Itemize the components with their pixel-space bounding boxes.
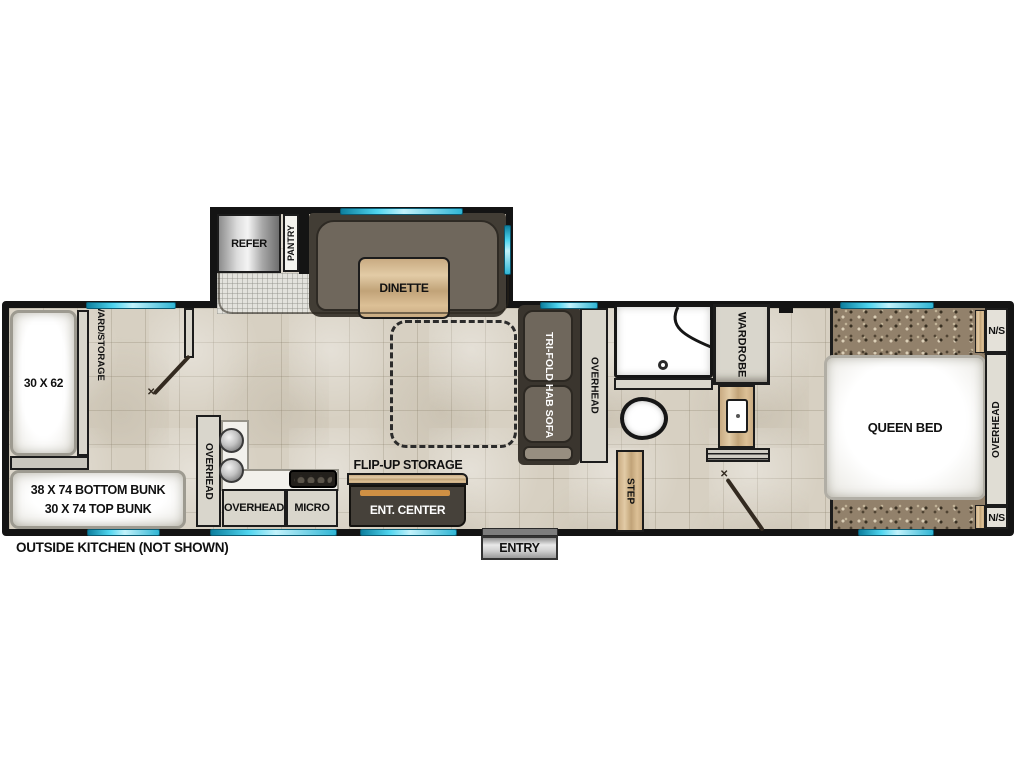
outside-kitchen-label: OUTSIDE KITCHEN (NOT SHOWN) xyxy=(16,540,228,555)
kitchen-sink-1 xyxy=(219,428,244,453)
wardrobe-label: WARDROBE xyxy=(736,312,748,377)
window-bath-top xyxy=(540,302,598,309)
bunk-line1: 38 X 74 BOTTOM BUNK xyxy=(31,481,165,499)
kitchen-overhead-cabinet: OVERHEAD xyxy=(222,489,286,527)
entry-door-threshold xyxy=(482,528,558,536)
window-slideout-side xyxy=(504,225,511,275)
sofa-overhead-cabinet: OVERHEAD xyxy=(580,308,608,463)
window-bedroom-bottom xyxy=(858,529,934,536)
pantry-divider-wall xyxy=(299,213,309,274)
entry-step-outside: ENTRY xyxy=(481,536,558,560)
bedroom-overhead-cabinet: OVERHEAD xyxy=(985,353,1008,506)
bedroom-overhead-label: OVERHEAD xyxy=(991,401,1002,458)
wardrobe-cabinet: WARDROBE xyxy=(713,304,770,385)
ent-center-label: ENT. CENTER xyxy=(370,503,445,517)
shower-drain-icon xyxy=(658,360,668,370)
window-slideout-top xyxy=(340,208,463,215)
window-entcenter-bottom xyxy=(360,529,457,536)
bedroom-door-hinge-icon: ✕ xyxy=(720,470,728,480)
kitchen-overhead-tall-label: OVERHEAD xyxy=(203,443,214,500)
dinette-table: DINETTE xyxy=(358,257,450,319)
flip-up-storage-text: FLIP-UP STORAGE xyxy=(354,458,463,472)
rv-floorplan: REFER PANTRY DINETTE 30 X 62 WARD/ STORA… xyxy=(0,0,1024,768)
shower-threshold xyxy=(614,378,713,390)
vanity-sink xyxy=(726,399,748,433)
queen-bed: QUEEN BED xyxy=(824,355,986,500)
nightstand-bottom: N/S xyxy=(985,506,1008,529)
kitchen-sink-2 xyxy=(219,458,244,483)
nightstand-trim-bottom xyxy=(975,505,985,529)
micro-label: MICRO xyxy=(294,502,329,514)
ent-center-cabinet: ENT. CENTER xyxy=(349,485,466,527)
bath-vanity xyxy=(718,385,755,448)
bunk-divider xyxy=(10,456,89,470)
range-burners xyxy=(294,475,332,483)
kitchen-overhead-label: OVERHEAD xyxy=(224,502,284,514)
sofa-label: TRI-FOLD HAB SOFA xyxy=(543,332,555,438)
window-kitchen-bottom xyxy=(210,529,337,536)
bunk-line2: 30 X 74 TOP BUNK xyxy=(45,500,152,518)
refrigerator: REFER xyxy=(217,214,281,273)
queen-bed-label: QUEEN BED xyxy=(868,420,943,435)
flip-up-storage-label: FLIP-UP STORAGE xyxy=(338,458,478,472)
entry-label: ENTRY xyxy=(499,541,539,555)
refer-label: REFER xyxy=(231,238,267,250)
closet-partition-wall xyxy=(184,308,194,358)
ward-storage-label: WARD/ STORAGE xyxy=(85,311,115,373)
ent-center-accent-bar xyxy=(360,490,450,496)
sofa-label-wrap: TRI-FOLD HAB SOFA xyxy=(518,305,580,465)
ns-top-label: N/S xyxy=(988,325,1005,337)
bedroom-wall-stub xyxy=(779,301,793,313)
front-bed-label: 30 X 62 xyxy=(24,376,63,390)
dinette-label: DINETTE xyxy=(379,281,428,295)
microwave-cabinet: MICRO xyxy=(286,489,338,527)
window-bunk-bottom xyxy=(87,529,160,536)
outside-kitchen-note: OUTSIDE KITCHEN (NOT SHOWN) xyxy=(16,540,296,555)
pantry: PANTRY xyxy=(283,214,299,272)
ward-storage-line2: STORAGE xyxy=(95,334,105,381)
range-cooktop xyxy=(289,470,337,488)
nightstand-trim-top xyxy=(975,310,985,353)
slideout-travel-outline xyxy=(390,320,517,448)
bunk-beds: 38 X 74 BOTTOM BUNK 30 X 74 TOP BUNK xyxy=(10,470,186,529)
bath-dresser xyxy=(706,448,770,462)
kitchen-overhead-cabinet-tall: OVERHEAD xyxy=(196,415,221,527)
nightstand-top: N/S xyxy=(985,308,1008,353)
vanity-faucet-icon xyxy=(736,414,740,418)
front-bed-30x62: 30 X 62 xyxy=(10,310,77,456)
closet-door-hinge-icon: ✕ xyxy=(147,388,155,398)
window-front-top xyxy=(86,302,176,309)
tri-fold-sofa: TRI-FOLD HAB SOFA xyxy=(518,305,580,465)
ns-bottom-label: N/S xyxy=(988,512,1005,524)
ent-center-label-wrap: ENT. CENTER xyxy=(351,497,464,523)
ent-center-countertop xyxy=(347,473,468,485)
entry-step-inside: STEP xyxy=(616,450,644,532)
window-bedroom-top xyxy=(840,302,934,309)
slideout-floor xyxy=(217,273,309,314)
pantry-label: PANTRY xyxy=(286,225,296,261)
step-label: STEP xyxy=(625,478,636,504)
sofa-overhead-label: OVERHEAD xyxy=(589,357,600,414)
